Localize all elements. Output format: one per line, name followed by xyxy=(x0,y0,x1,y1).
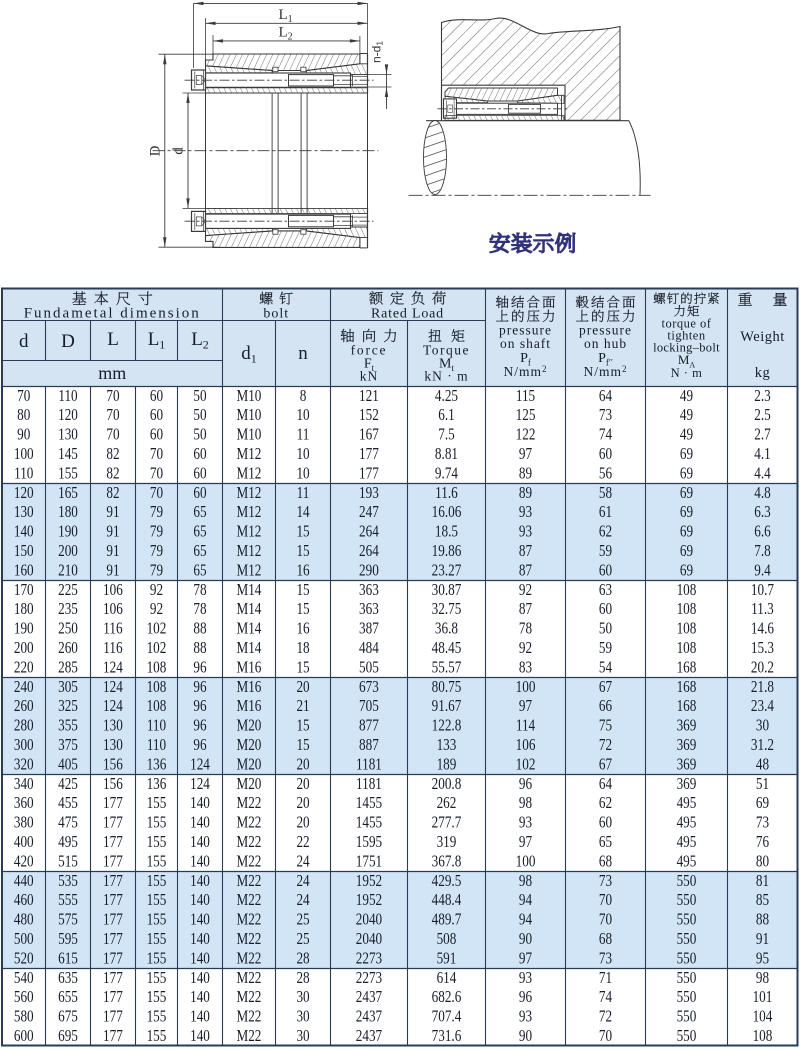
svg-text:28: 28 xyxy=(296,950,309,968)
svg-text:M10: M10 xyxy=(236,407,261,425)
svg-text:70: 70 xyxy=(150,446,163,464)
svg-text:550: 550 xyxy=(677,950,697,968)
svg-text:70: 70 xyxy=(17,388,30,406)
svg-text:91: 91 xyxy=(106,523,119,541)
svg-text:60: 60 xyxy=(150,388,163,406)
svg-text:116: 116 xyxy=(103,640,123,658)
svg-text:82: 82 xyxy=(106,485,119,503)
svg-text:N/mm2: N/mm2 xyxy=(503,364,547,379)
svg-text:96: 96 xyxy=(519,989,533,1007)
svg-text:9.74: 9.74 xyxy=(435,465,459,483)
svg-text:15: 15 xyxy=(296,737,309,755)
svg-text:155: 155 xyxy=(147,873,167,891)
svg-text:kN · m: kN · m xyxy=(424,369,468,384)
svg-text:70: 70 xyxy=(599,1028,612,1046)
svg-text:23.4: 23.4 xyxy=(751,698,775,716)
svg-text:165: 165 xyxy=(58,485,78,503)
svg-text:508: 508 xyxy=(437,931,457,949)
svg-text:36.8: 36.8 xyxy=(435,620,458,638)
svg-text:1952: 1952 xyxy=(356,892,382,910)
svg-text:887: 887 xyxy=(359,737,379,755)
svg-text:L2: L2 xyxy=(279,25,293,43)
svg-text:180: 180 xyxy=(14,601,34,619)
svg-text:591: 591 xyxy=(437,950,457,968)
svg-text:108: 108 xyxy=(677,620,697,638)
svg-text:425: 425 xyxy=(58,776,78,794)
svg-text:50: 50 xyxy=(193,426,206,444)
svg-text:d: d xyxy=(19,331,29,352)
svg-text:Torque: Torque xyxy=(423,343,470,358)
svg-text:23.27: 23.27 xyxy=(432,562,462,580)
svg-text:363: 363 xyxy=(359,582,379,600)
svg-text:60: 60 xyxy=(599,562,612,580)
svg-text:429.5: 429.5 xyxy=(432,873,462,891)
svg-text:177: 177 xyxy=(103,989,123,1007)
svg-text:82: 82 xyxy=(106,446,119,464)
svg-text:69: 69 xyxy=(680,543,693,561)
svg-text:200: 200 xyxy=(14,640,34,658)
svg-text:67: 67 xyxy=(599,679,613,697)
svg-text:95: 95 xyxy=(756,950,769,968)
svg-text:54: 54 xyxy=(599,659,613,677)
svg-text:24: 24 xyxy=(296,873,310,891)
svg-text:15: 15 xyxy=(296,717,309,735)
svg-text:mm: mm xyxy=(98,363,126,383)
svg-text:100: 100 xyxy=(14,446,34,464)
svg-text:595: 595 xyxy=(58,931,78,949)
svg-text:300: 300 xyxy=(14,737,34,755)
svg-text:2437: 2437 xyxy=(356,1028,383,1046)
svg-text:on hub: on hub xyxy=(584,336,627,351)
svg-text:2040: 2040 xyxy=(356,911,382,929)
svg-text:325: 325 xyxy=(58,698,78,716)
svg-text:305: 305 xyxy=(58,679,78,697)
svg-text:120: 120 xyxy=(58,407,78,425)
svg-text:369: 369 xyxy=(677,737,697,755)
svg-text:M20: M20 xyxy=(236,717,261,735)
svg-text:250: 250 xyxy=(58,620,78,638)
svg-text:363: 363 xyxy=(359,601,379,619)
svg-text:74: 74 xyxy=(599,989,613,1007)
svg-text:177: 177 xyxy=(359,465,379,483)
svg-text:65: 65 xyxy=(599,834,612,852)
svg-text:force: force xyxy=(351,343,388,358)
svg-text:156: 156 xyxy=(103,756,123,774)
svg-text:155: 155 xyxy=(147,931,167,949)
svg-text:320: 320 xyxy=(14,756,34,774)
svg-text:90: 90 xyxy=(17,426,30,444)
svg-text:264: 264 xyxy=(359,523,379,541)
svg-text:M10: M10 xyxy=(236,388,261,406)
svg-text:60: 60 xyxy=(150,426,163,444)
svg-text:M22: M22 xyxy=(236,834,261,852)
svg-text:580: 580 xyxy=(14,1008,34,1026)
svg-text:108: 108 xyxy=(677,601,697,619)
svg-text:69: 69 xyxy=(756,795,769,813)
svg-text:367.8: 367.8 xyxy=(432,853,462,871)
svg-text:140: 140 xyxy=(190,834,210,852)
svg-text:M16: M16 xyxy=(236,659,261,677)
svg-text:66: 66 xyxy=(599,698,613,716)
svg-text:98: 98 xyxy=(519,795,532,813)
svg-text:88: 88 xyxy=(193,620,206,638)
svg-text:102: 102 xyxy=(516,756,536,774)
svg-text:64: 64 xyxy=(599,388,613,406)
svg-text:73: 73 xyxy=(599,950,612,968)
svg-text:102: 102 xyxy=(147,640,167,658)
svg-text:110: 110 xyxy=(147,737,166,755)
svg-text:495: 495 xyxy=(677,795,697,813)
svg-text:30: 30 xyxy=(296,1028,309,1046)
svg-text:18: 18 xyxy=(296,640,309,658)
svg-text:96: 96 xyxy=(193,737,207,755)
svg-text:M22: M22 xyxy=(236,873,261,891)
svg-text:69: 69 xyxy=(680,485,693,503)
svg-text:2040: 2040 xyxy=(356,931,382,949)
svg-text:L1: L1 xyxy=(279,7,293,25)
svg-text:177: 177 xyxy=(103,834,123,852)
svg-text:110: 110 xyxy=(147,717,166,735)
svg-text:101: 101 xyxy=(753,989,773,1007)
svg-text:200.8: 200.8 xyxy=(432,776,462,794)
svg-text:7.8: 7.8 xyxy=(754,543,770,561)
svg-text:Rated Load: Rated Load xyxy=(371,307,444,322)
svg-text:102: 102 xyxy=(147,620,167,638)
svg-text:31.2: 31.2 xyxy=(751,737,774,755)
svg-text:87: 87 xyxy=(519,562,533,580)
svg-text:124: 124 xyxy=(103,659,123,677)
svg-text:150: 150 xyxy=(14,543,34,561)
svg-text:877: 877 xyxy=(359,717,379,735)
svg-text:155: 155 xyxy=(147,911,167,929)
svg-text:262: 262 xyxy=(437,795,457,813)
svg-text:91: 91 xyxy=(106,504,119,522)
svg-text:32.75: 32.75 xyxy=(432,601,462,619)
svg-text:130: 130 xyxy=(58,426,78,444)
svg-text:79: 79 xyxy=(150,504,163,522)
svg-text:340: 340 xyxy=(14,776,34,794)
svg-text:68: 68 xyxy=(599,931,612,949)
svg-text:210: 210 xyxy=(58,562,78,580)
svg-text:92: 92 xyxy=(519,582,532,600)
svg-text:10: 10 xyxy=(296,446,309,464)
svg-text:80.75: 80.75 xyxy=(432,679,462,697)
svg-text:155: 155 xyxy=(147,853,167,871)
svg-text:448.4: 448.4 xyxy=(432,892,462,910)
svg-text:50: 50 xyxy=(193,407,206,425)
svg-text:673: 673 xyxy=(359,679,379,697)
svg-text:87: 87 xyxy=(519,601,533,619)
svg-text:355: 355 xyxy=(58,717,78,735)
svg-text:70: 70 xyxy=(106,388,119,406)
svg-text:M12: M12 xyxy=(236,485,261,503)
svg-text:110: 110 xyxy=(14,465,33,483)
svg-text:49: 49 xyxy=(680,407,693,425)
svg-text:550: 550 xyxy=(677,989,697,1007)
svg-text:94: 94 xyxy=(519,892,533,910)
svg-text:108: 108 xyxy=(677,640,697,658)
svg-text:100: 100 xyxy=(516,853,536,871)
svg-text:24: 24 xyxy=(296,892,310,910)
svg-text:on shaft: on shaft xyxy=(500,336,551,351)
svg-text:495: 495 xyxy=(58,834,78,852)
svg-text:190: 190 xyxy=(14,620,34,638)
svg-text:49: 49 xyxy=(680,388,693,406)
svg-text:97: 97 xyxy=(519,834,533,852)
svg-text:48.45: 48.45 xyxy=(432,640,462,658)
svg-text:130: 130 xyxy=(103,717,123,735)
svg-text:93: 93 xyxy=(519,1008,532,1026)
svg-text:155: 155 xyxy=(147,795,167,813)
svg-text:4.1: 4.1 xyxy=(754,446,770,464)
svg-text:16: 16 xyxy=(296,620,310,638)
svg-text:555: 555 xyxy=(58,892,78,910)
svg-text:63: 63 xyxy=(599,582,612,600)
svg-text:6.6: 6.6 xyxy=(754,523,771,541)
svg-text:64: 64 xyxy=(599,776,613,794)
svg-text:550: 550 xyxy=(677,892,697,910)
svg-text:177: 177 xyxy=(103,795,123,813)
svg-text:560: 560 xyxy=(14,989,34,1007)
svg-text:550: 550 xyxy=(677,1028,697,1046)
svg-text:280: 280 xyxy=(14,717,34,735)
svg-text:65: 65 xyxy=(193,543,206,561)
svg-text:614: 614 xyxy=(437,970,457,988)
svg-text:2.3: 2.3 xyxy=(754,388,770,406)
svg-text:140: 140 xyxy=(190,989,210,1007)
svg-text:6.1: 6.1 xyxy=(438,407,454,425)
svg-text:M14: M14 xyxy=(236,582,261,600)
svg-text:15: 15 xyxy=(296,582,309,600)
svg-text:10: 10 xyxy=(296,407,309,425)
svg-text:2437: 2437 xyxy=(356,1008,383,1026)
svg-text:550: 550 xyxy=(677,931,697,949)
svg-text:4.25: 4.25 xyxy=(435,388,458,406)
svg-text:480: 480 xyxy=(14,911,34,929)
svg-text:21.8: 21.8 xyxy=(751,679,774,697)
svg-text:93: 93 xyxy=(519,814,532,832)
svg-text:177: 177 xyxy=(359,446,379,464)
svg-text:62: 62 xyxy=(599,523,612,541)
svg-text:177: 177 xyxy=(103,853,123,871)
svg-text:22: 22 xyxy=(296,834,309,852)
svg-text:80: 80 xyxy=(756,853,769,871)
svg-text:155: 155 xyxy=(58,465,78,483)
svg-text:489.7: 489.7 xyxy=(432,911,462,929)
svg-text:88: 88 xyxy=(193,640,206,658)
svg-text:495: 495 xyxy=(677,814,697,832)
svg-text:69: 69 xyxy=(680,504,693,522)
svg-text:69: 69 xyxy=(680,523,693,541)
svg-text:405: 405 xyxy=(58,756,78,774)
svg-text:50: 50 xyxy=(193,388,206,406)
svg-text:70: 70 xyxy=(599,892,612,910)
svg-text:97: 97 xyxy=(519,950,533,968)
svg-text:10.7: 10.7 xyxy=(751,582,775,600)
svg-text:16.06: 16.06 xyxy=(432,504,462,522)
svg-text:106: 106 xyxy=(516,737,536,755)
svg-text:60: 60 xyxy=(193,485,206,503)
svg-text:97: 97 xyxy=(519,698,533,716)
svg-text:M22: M22 xyxy=(236,892,261,910)
svg-text:M22: M22 xyxy=(236,1008,261,1026)
svg-text:124: 124 xyxy=(190,776,210,794)
svg-text:60: 60 xyxy=(599,814,612,832)
svg-text:220: 220 xyxy=(14,659,34,677)
svg-text:155: 155 xyxy=(147,989,167,1007)
svg-text:100: 100 xyxy=(516,679,536,697)
svg-text:15.3: 15.3 xyxy=(751,640,774,658)
svg-text:70: 70 xyxy=(106,426,119,444)
svg-text:155: 155 xyxy=(147,834,167,852)
svg-text:M10: M10 xyxy=(236,426,261,444)
svg-text:156: 156 xyxy=(103,776,123,794)
svg-text:145: 145 xyxy=(58,446,78,464)
svg-text:15: 15 xyxy=(296,543,309,561)
svg-text:705: 705 xyxy=(359,698,379,716)
svg-text:M22: M22 xyxy=(236,853,261,871)
svg-text:104: 104 xyxy=(753,1008,773,1026)
svg-text:189: 189 xyxy=(437,756,457,774)
svg-text:56: 56 xyxy=(599,465,613,483)
svg-text:124: 124 xyxy=(103,698,123,716)
svg-text:285: 285 xyxy=(58,659,78,677)
svg-text:30: 30 xyxy=(296,1008,309,1026)
svg-text:152: 152 xyxy=(359,407,379,425)
svg-text:92: 92 xyxy=(150,582,163,600)
svg-text:M14: M14 xyxy=(236,601,261,619)
svg-text:375: 375 xyxy=(58,737,78,755)
svg-text:48: 48 xyxy=(756,756,769,774)
svg-text:97: 97 xyxy=(519,446,533,464)
svg-text:124: 124 xyxy=(103,679,123,697)
svg-text:140: 140 xyxy=(190,950,210,968)
svg-text:136: 136 xyxy=(147,776,167,794)
svg-text:505: 505 xyxy=(359,659,379,677)
svg-text:167: 167 xyxy=(359,426,379,444)
svg-text:M12: M12 xyxy=(236,562,261,580)
svg-text:155: 155 xyxy=(147,1008,167,1026)
svg-text:235: 235 xyxy=(58,601,78,619)
svg-text:Fundametal dimension: Fundametal dimension xyxy=(24,306,201,322)
svg-text:682.6: 682.6 xyxy=(432,989,462,1007)
svg-text:177: 177 xyxy=(103,911,123,929)
svg-text:2273: 2273 xyxy=(356,950,382,968)
svg-text:675: 675 xyxy=(58,1008,78,1026)
svg-text:360: 360 xyxy=(14,795,34,813)
svg-text:78: 78 xyxy=(193,582,206,600)
svg-text:136: 136 xyxy=(147,756,167,774)
svg-text:15: 15 xyxy=(296,523,309,541)
svg-text:200: 200 xyxy=(58,543,78,561)
svg-text:170: 170 xyxy=(14,582,34,600)
svg-text:24: 24 xyxy=(296,853,310,871)
svg-text:89: 89 xyxy=(519,485,532,503)
svg-text:73: 73 xyxy=(756,814,769,832)
svg-text:400: 400 xyxy=(14,834,34,852)
svg-text:15: 15 xyxy=(296,601,309,619)
svg-text:20: 20 xyxy=(296,814,309,832)
svg-text:635: 635 xyxy=(58,970,78,988)
svg-text:30.87: 30.87 xyxy=(432,582,462,600)
svg-text:277.7: 277.7 xyxy=(432,814,462,832)
svg-text:20: 20 xyxy=(296,795,309,813)
svg-text:85: 85 xyxy=(756,892,769,910)
svg-text:168: 168 xyxy=(677,659,697,677)
svg-text:91: 91 xyxy=(756,931,769,949)
svg-text:247: 247 xyxy=(359,504,379,522)
svg-text:M12: M12 xyxy=(236,504,261,522)
svg-text:60: 60 xyxy=(193,446,206,464)
svg-text:495: 495 xyxy=(677,834,697,852)
svg-text:20.2: 20.2 xyxy=(751,659,774,677)
svg-text:25: 25 xyxy=(296,931,309,949)
svg-text:495: 495 xyxy=(677,853,697,871)
svg-text:177: 177 xyxy=(103,814,123,832)
svg-text:115: 115 xyxy=(516,388,535,406)
svg-text:116: 116 xyxy=(103,620,123,638)
svg-text:290: 290 xyxy=(359,562,379,580)
svg-text:695: 695 xyxy=(58,1028,78,1046)
svg-text:260: 260 xyxy=(14,698,34,716)
svg-text:1751: 1751 xyxy=(356,853,382,871)
svg-text:11: 11 xyxy=(297,485,310,503)
svg-text:180: 180 xyxy=(58,504,78,522)
svg-text:60: 60 xyxy=(599,601,612,619)
svg-text:88: 88 xyxy=(756,911,769,929)
svg-text:475: 475 xyxy=(58,814,78,832)
svg-text:550: 550 xyxy=(677,873,697,891)
svg-text:11.6: 11.6 xyxy=(435,485,458,503)
svg-text:140: 140 xyxy=(190,1008,210,1026)
svg-text:D: D xyxy=(61,331,75,352)
svg-text:90: 90 xyxy=(519,931,532,949)
svg-text:177: 177 xyxy=(103,970,123,988)
svg-text:M22: M22 xyxy=(236,950,261,968)
svg-text:96: 96 xyxy=(193,698,207,716)
svg-text:455: 455 xyxy=(58,795,78,813)
svg-text:4.4: 4.4 xyxy=(754,465,771,483)
svg-text:106: 106 xyxy=(103,601,123,619)
svg-text:25: 25 xyxy=(296,911,309,929)
svg-text:319: 319 xyxy=(437,834,457,852)
svg-text:177: 177 xyxy=(103,873,123,891)
svg-text:124: 124 xyxy=(190,756,210,774)
svg-text:1595: 1595 xyxy=(356,834,382,852)
svg-text:140: 140 xyxy=(190,931,210,949)
svg-text:140: 140 xyxy=(190,795,210,813)
svg-text:M22: M22 xyxy=(236,795,261,813)
svg-text:160: 160 xyxy=(14,562,34,580)
svg-text:108: 108 xyxy=(753,1028,773,1046)
svg-text:92: 92 xyxy=(150,601,163,619)
svg-text:d: d xyxy=(171,147,187,155)
svg-text:11.3: 11.3 xyxy=(751,601,774,619)
svg-text:90: 90 xyxy=(519,1028,532,1046)
svg-text:121: 121 xyxy=(359,388,379,406)
svg-text:91.67: 91.67 xyxy=(432,698,462,716)
svg-text:n: n xyxy=(298,343,308,364)
svg-text:M16: M16 xyxy=(236,679,261,697)
svg-text:76: 76 xyxy=(756,834,770,852)
svg-text:68: 68 xyxy=(599,853,612,871)
svg-text:6.3: 6.3 xyxy=(754,504,770,522)
svg-text:94: 94 xyxy=(519,911,533,929)
svg-text:110: 110 xyxy=(58,388,77,406)
svg-text:177: 177 xyxy=(103,1008,123,1026)
svg-text:89: 89 xyxy=(519,465,532,483)
svg-text:51: 51 xyxy=(756,776,769,794)
